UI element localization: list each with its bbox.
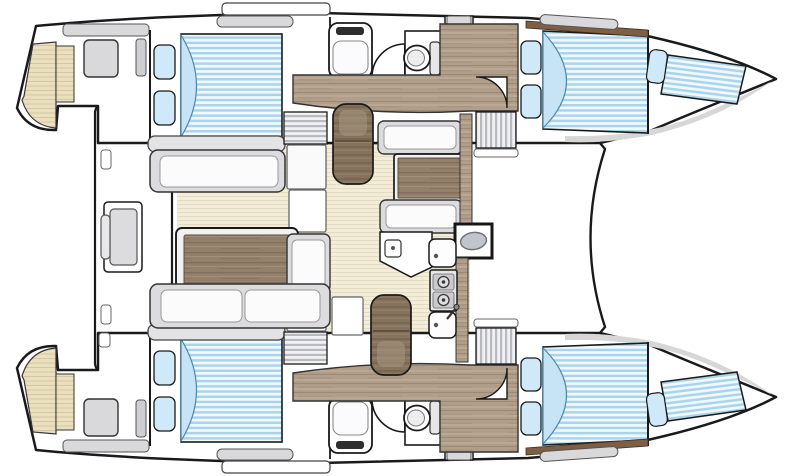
transom-step [56,46,74,102]
beam-latch [101,305,111,324]
toilet-tank [430,42,440,75]
beam-latch [101,150,111,169]
deck-hatch [217,16,293,27]
storage-box [332,297,363,335]
wood-chair-aft [371,295,411,375]
companionway-steps [476,112,516,148]
catamaran-floorplan [0,0,800,476]
pillow [521,85,541,118]
locker-latch [136,39,146,76]
coachroof-step [222,3,330,15]
sofa-cushion [245,290,320,322]
pillow [646,49,668,84]
drain-icon [434,254,438,258]
cockpit-bench-cushion [110,209,137,265]
drain-icon [391,246,395,250]
storage-box [289,190,326,232]
wood-chair-forward [333,104,373,184]
cockpit-bench-backrest [101,215,110,259]
bench-cushion [384,126,456,149]
pillow [154,45,175,79]
wash-basin [333,41,368,74]
storage-box [287,145,326,189]
galley-sink [429,239,456,267]
deck-locker [84,40,118,77]
wood-partition [460,114,472,230]
galley-sink [429,312,456,338]
stern-locker [63,24,149,36]
dinette-table-top [398,158,460,198]
saloon-table-top [184,235,290,289]
pillow [521,41,541,74]
floorplan-canvas [0,0,800,476]
faucet-knob-icon [338,28,344,34]
drain-icon [434,323,438,327]
sofa-cushion [292,240,325,287]
wood-partition [456,258,468,362]
sofa-cushion [160,156,278,187]
faucet-knob-icon [356,28,362,34]
toilet-seat-icon [408,50,425,66]
bench-cushion [386,205,456,228]
stove [430,270,457,311]
pillow [154,91,175,125]
faucet-knob-icon [454,304,459,309]
beam-latch [99,333,110,347]
companionway-steps [284,112,327,144]
sofa-cushion [161,290,242,322]
step-threshold [474,149,518,157]
